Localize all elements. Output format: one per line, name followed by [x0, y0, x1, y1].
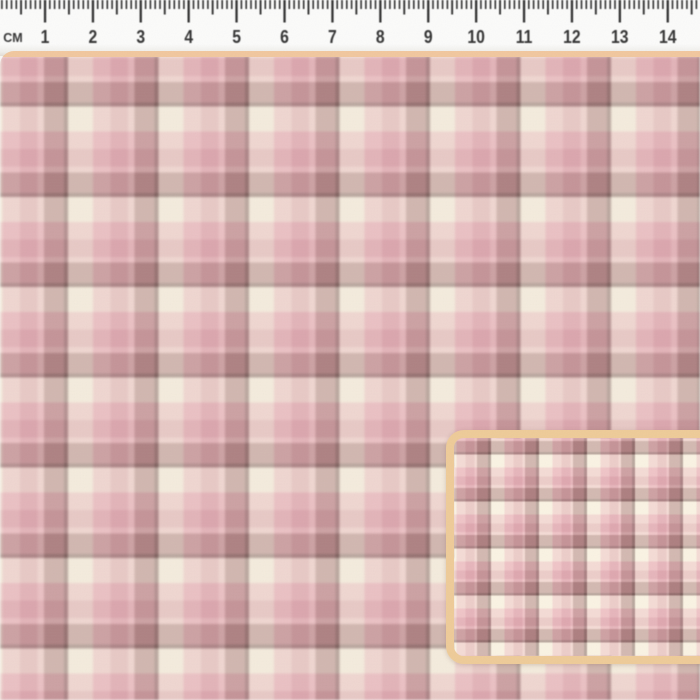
svg-text:1: 1 — [41, 26, 50, 48]
svg-text:11: 11 — [516, 26, 533, 48]
svg-text:4: 4 — [184, 26, 193, 48]
svg-text:9: 9 — [424, 26, 433, 48]
svg-text:14: 14 — [659, 26, 677, 48]
svg-text:2: 2 — [89, 26, 98, 48]
svg-text:5: 5 — [232, 26, 241, 48]
svg-text:7: 7 — [328, 26, 337, 48]
svg-text:CM: CM — [3, 31, 22, 45]
svg-text:13: 13 — [611, 26, 628, 48]
svg-text:10: 10 — [467, 26, 484, 48]
svg-text:12: 12 — [563, 26, 580, 48]
svg-text:3: 3 — [136, 26, 145, 48]
svg-text:8: 8 — [376, 26, 385, 48]
svg-text:6: 6 — [280, 26, 289, 48]
